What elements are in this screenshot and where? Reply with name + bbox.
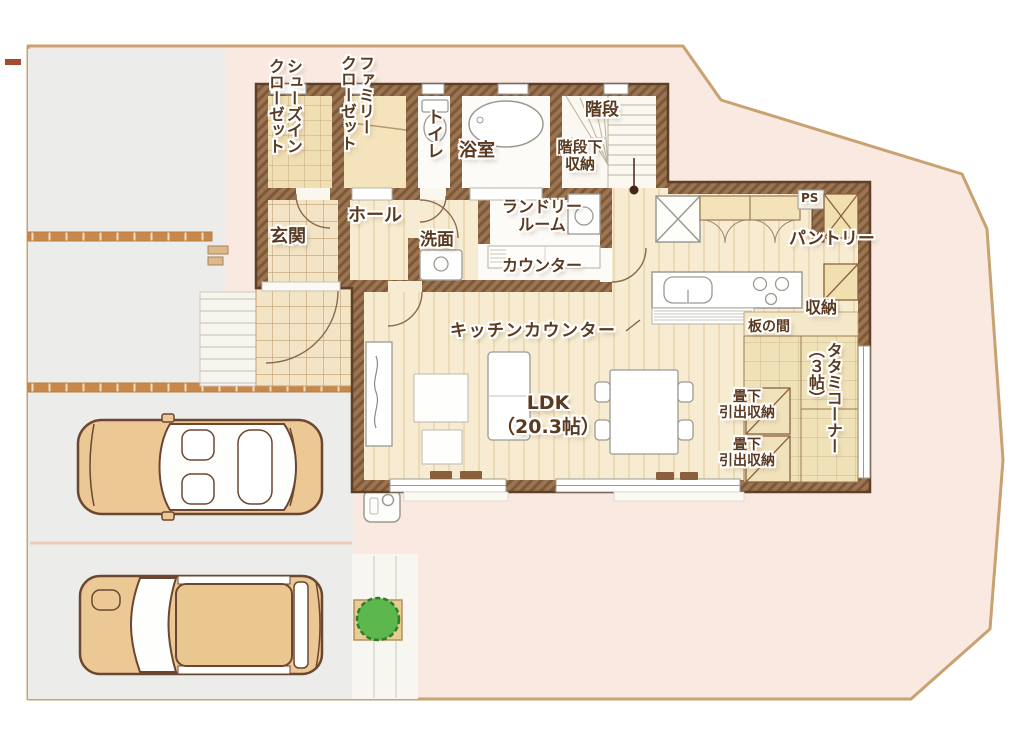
label-stairs: 階段: [585, 101, 619, 120]
boundary-marker: [5, 59, 21, 65]
floor-cushion: [422, 430, 462, 464]
refrigerator-space: [656, 196, 700, 242]
label-toilet: トイレ: [423, 108, 442, 203]
car-2: [80, 576, 322, 674]
label-family-closet: ファミリー クローゼット: [338, 55, 374, 215]
kitchen-counter-bar: [652, 308, 754, 324]
stairs-entry-dot: [630, 186, 639, 195]
deck-step: [614, 492, 744, 501]
label-entrance: 玄関: [270, 227, 306, 247]
gate-mark: [208, 246, 228, 254]
label-kitchen-counter: キッチンカウンター: [450, 322, 617, 341]
label-pantry: パントリー: [789, 230, 875, 249]
label-washroom: 洗面: [420, 231, 454, 250]
label-shoes-closet: シューズイン クローゼット: [266, 58, 302, 208]
label-bath: 浴室: [459, 141, 495, 161]
outdoor-sink: [364, 490, 400, 522]
car-1: [78, 414, 322, 520]
label-laundry-counter: カウンター: [502, 257, 582, 275]
plan-drawing: [0, 0, 1024, 752]
gate-mark: [208, 257, 223, 265]
garden-shrub: [354, 598, 402, 640]
label-ldk: LDK （20.3帖）: [468, 392, 628, 440]
label-hall: ホール: [348, 206, 402, 226]
floor-plan: シューズイン クローゼット ファミリー クローゼット トイレ 浴室 階段 階段下…: [0, 0, 1024, 752]
label-laundry: ランドリー ルーム: [490, 198, 594, 234]
tv-board: [366, 342, 392, 446]
label-under-stairs: 階段下 収納: [545, 139, 615, 173]
deck-step: [404, 492, 508, 501]
storage-cabinet: [824, 264, 858, 300]
label-itanoma: 板の間: [748, 320, 790, 336]
label-tatami-drawer-1: 畳下 引出収納: [700, 390, 794, 421]
label-ps: PS: [801, 192, 818, 205]
label-tatami-drawer-2: 畳下 引出収納: [700, 438, 794, 469]
washbasin: [420, 250, 462, 280]
label-tatami-corner: タタミコーナー （３帖）: [806, 342, 842, 494]
label-storage: 収納: [805, 299, 837, 317]
approach-walkway: [200, 292, 256, 386]
parking-divider-brick: [28, 232, 212, 241]
sofa: [414, 374, 468, 422]
